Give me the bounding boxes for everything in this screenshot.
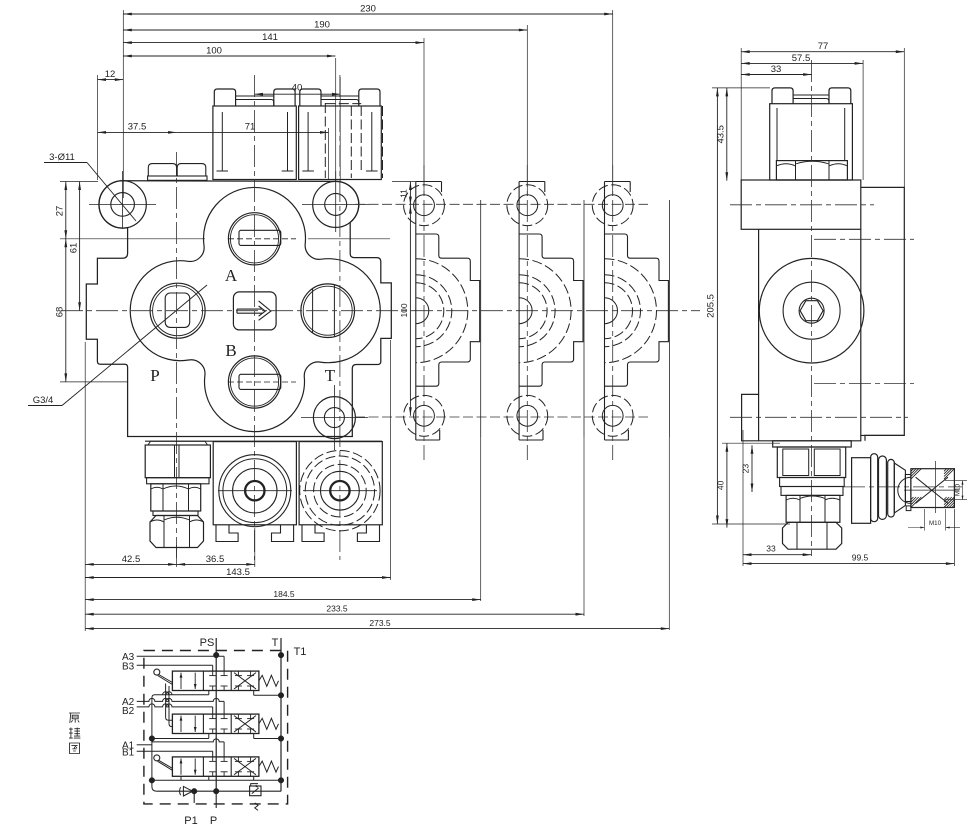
svg-text:42.5: 42.5 bbox=[122, 554, 141, 565]
svg-text:P: P bbox=[150, 366, 159, 385]
svg-text:71: 71 bbox=[245, 122, 256, 133]
svg-text:184.5: 184.5 bbox=[273, 589, 295, 599]
svg-text:T: T bbox=[325, 366, 336, 385]
svg-text:57.5: 57.5 bbox=[792, 53, 811, 64]
svg-text:27: 27 bbox=[55, 206, 66, 217]
svg-text:205.5: 205.5 bbox=[705, 294, 716, 318]
svg-text:B: B bbox=[225, 341, 236, 360]
svg-text:PS: PS bbox=[200, 637, 215, 649]
svg-text:230: 230 bbox=[360, 4, 376, 15]
svg-text:40: 40 bbox=[716, 480, 726, 490]
svg-text:100: 100 bbox=[399, 303, 409, 317]
svg-text:141: 141 bbox=[262, 32, 278, 43]
svg-text:100: 100 bbox=[206, 46, 222, 57]
svg-text:143.5: 143.5 bbox=[226, 567, 250, 578]
svg-text:23: 23 bbox=[740, 464, 750, 474]
svg-text:P: P bbox=[210, 815, 217, 827]
svg-text:36.5: 36.5 bbox=[206, 554, 225, 565]
svg-text:M10: M10 bbox=[955, 483, 962, 496]
svg-text:B2: B2 bbox=[122, 706, 135, 717]
svg-text:77: 77 bbox=[818, 41, 829, 52]
svg-text:37.5: 37.5 bbox=[128, 122, 147, 133]
svg-text:68: 68 bbox=[55, 307, 66, 318]
svg-text:B3: B3 bbox=[122, 662, 135, 673]
svg-text:T: T bbox=[272, 637, 279, 649]
svg-text:33: 33 bbox=[766, 544, 776, 554]
svg-text:M10: M10 bbox=[929, 520, 942, 527]
svg-text:40: 40 bbox=[292, 83, 303, 94]
svg-text:G3/4: G3/4 bbox=[33, 395, 54, 406]
svg-text:233.5: 233.5 bbox=[326, 604, 348, 614]
svg-text:99.5: 99.5 bbox=[852, 553, 869, 563]
svg-text:12: 12 bbox=[105, 69, 116, 80]
svg-text:T1: T1 bbox=[294, 646, 307, 658]
svg-text:33: 33 bbox=[771, 64, 782, 75]
svg-text:P1: P1 bbox=[184, 815, 197, 827]
svg-text:273.5: 273.5 bbox=[369, 618, 391, 628]
svg-text:B1: B1 bbox=[122, 748, 135, 759]
svg-text:190: 190 bbox=[314, 20, 330, 31]
svg-text:3-Ø11: 3-Ø11 bbox=[49, 152, 75, 163]
svg-text:61: 61 bbox=[69, 243, 80, 254]
svg-text:A: A bbox=[225, 266, 238, 285]
svg-text:11: 11 bbox=[399, 189, 409, 198]
